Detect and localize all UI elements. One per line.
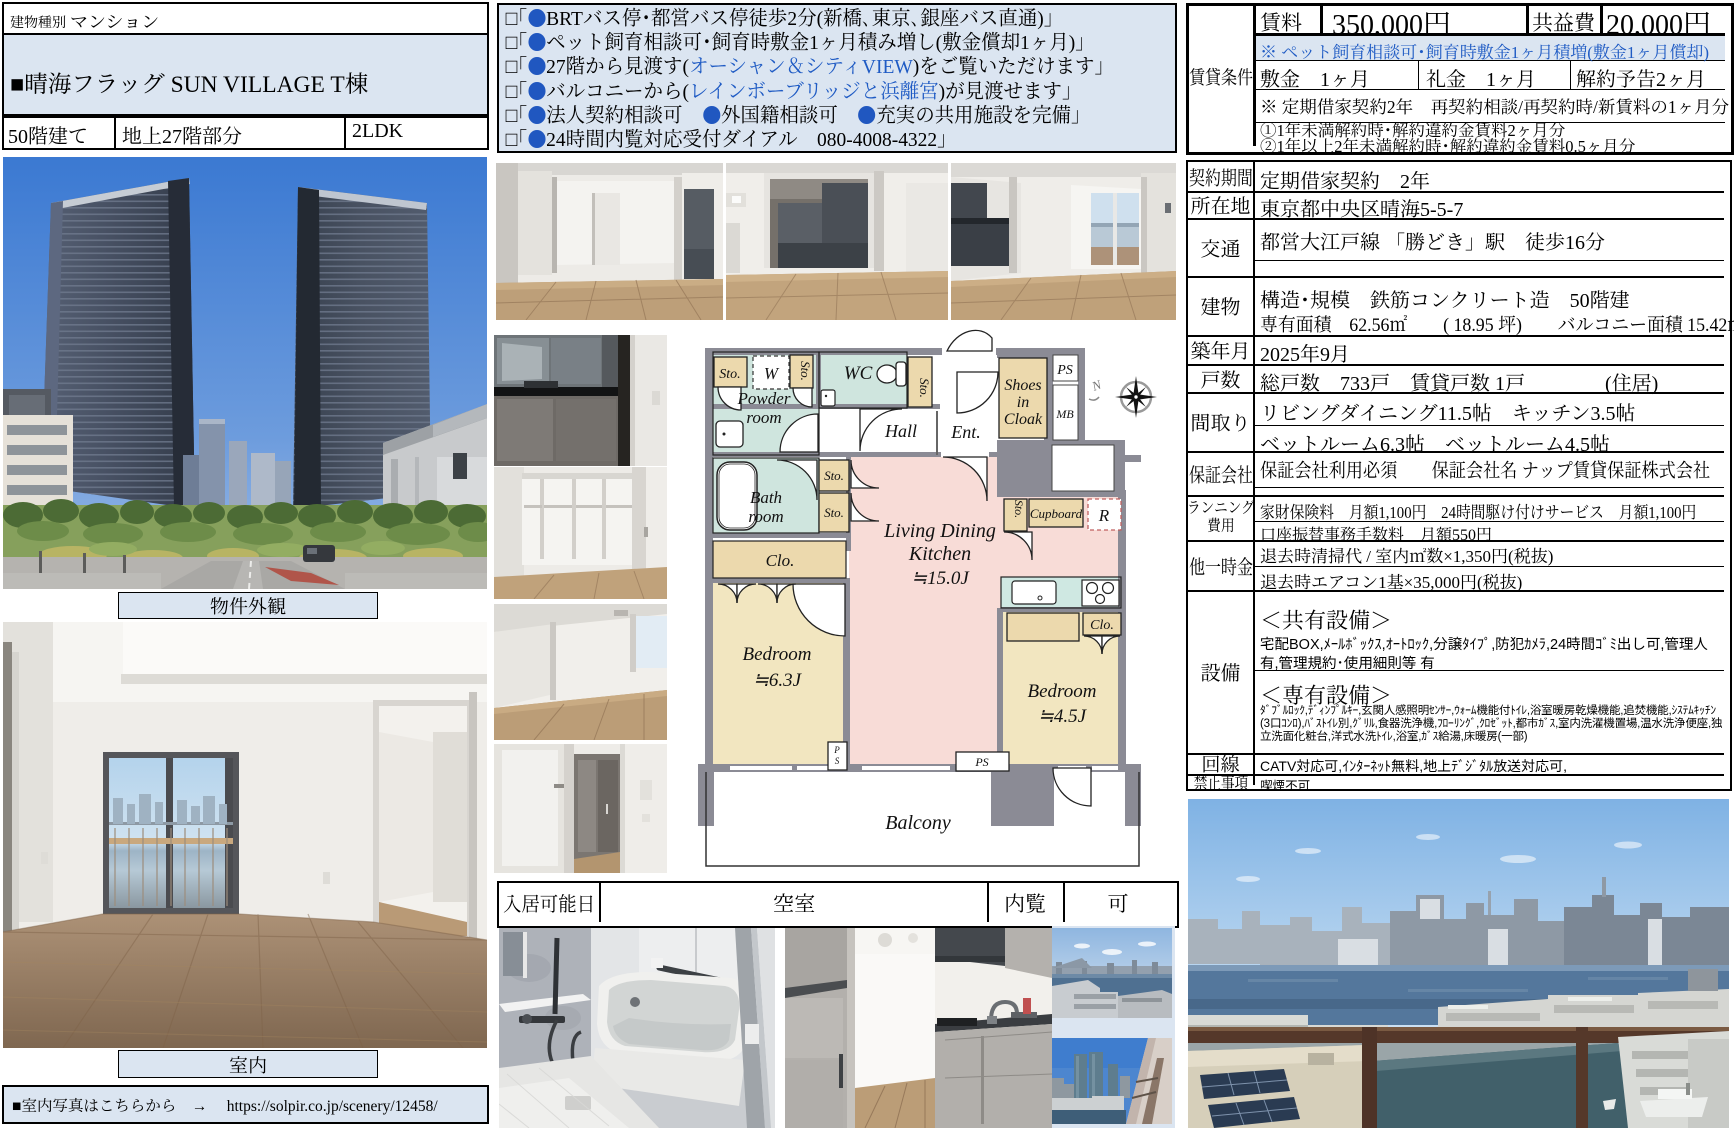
svg-text:P: P <box>833 745 840 755</box>
svg-text:Powder: Powder <box>737 389 791 408</box>
svg-text:Cupboard: Cupboard <box>1030 506 1083 521</box>
svg-text:Bedroom: Bedroom <box>743 644 812 665</box>
svg-text:Clo.: Clo. <box>766 551 795 570</box>
svg-text:N: N <box>1089 376 1104 394</box>
svg-text:Cloak: Cloak <box>1004 411 1043 428</box>
svg-text:Sto.: Sto. <box>824 505 844 520</box>
svg-text:Bedroom: Bedroom <box>1028 681 1097 702</box>
svg-text:Balcony: Balcony <box>885 812 951 834</box>
svg-text:Living Dining: Living Dining <box>883 520 996 542</box>
svg-text:room: room <box>748 507 783 526</box>
svg-text:W: W <box>764 364 780 383</box>
svg-text:Sto.: Sto. <box>719 367 740 382</box>
svg-text:PS: PS <box>1056 363 1073 378</box>
svg-text:Shoes: Shoes <box>1004 377 1041 394</box>
svg-text:≒4.5J: ≒4.5J <box>1038 706 1088 727</box>
svg-text:Sto.: Sto. <box>917 378 932 398</box>
svg-text:Clo.: Clo. <box>1090 618 1114 633</box>
svg-text:S: S <box>835 756 840 766</box>
svg-text:Sto.: Sto. <box>1012 500 1026 518</box>
svg-text:Sto.: Sto. <box>824 468 844 483</box>
svg-text:in: in <box>1017 394 1029 411</box>
svg-text:Bath: Bath <box>750 488 782 507</box>
svg-text:Hall: Hall <box>884 421 917 441</box>
svg-text:MB: MB <box>1055 407 1074 421</box>
svg-text:PS: PS <box>974 755 988 769</box>
svg-text:Kitchen: Kitchen <box>908 543 971 565</box>
svg-text:room: room <box>746 408 781 427</box>
svg-text:≒15.0J: ≒15.0J <box>911 568 970 589</box>
svg-text:Ent.: Ent. <box>950 422 981 442</box>
svg-text:Sto.: Sto. <box>798 361 813 381</box>
svg-text:≒6.3J: ≒6.3J <box>753 670 803 691</box>
svg-text:WC: WC <box>844 363 873 384</box>
svg-text:R: R <box>1098 506 1110 525</box>
